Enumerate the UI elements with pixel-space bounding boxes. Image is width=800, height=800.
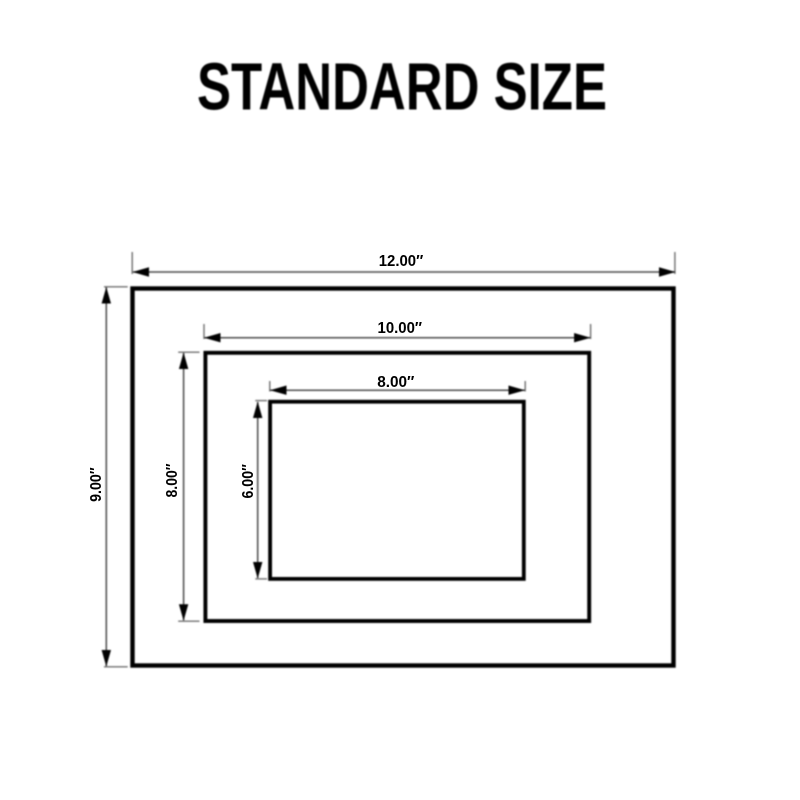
svg-text:12.00″: 12.00″: [379, 253, 424, 270]
svg-text:10.00″: 10.00″: [378, 320, 423, 337]
svg-text:8.00″: 8.00″: [377, 374, 415, 391]
svg-text:8.00″: 8.00″: [164, 463, 181, 497]
svg-text:6.00″: 6.00″: [240, 464, 257, 499]
svg-text:STANDARD SIZE: STANDARD SIZE: [197, 50, 607, 125]
svg-text:9.00″: 9.00″: [88, 467, 105, 502]
